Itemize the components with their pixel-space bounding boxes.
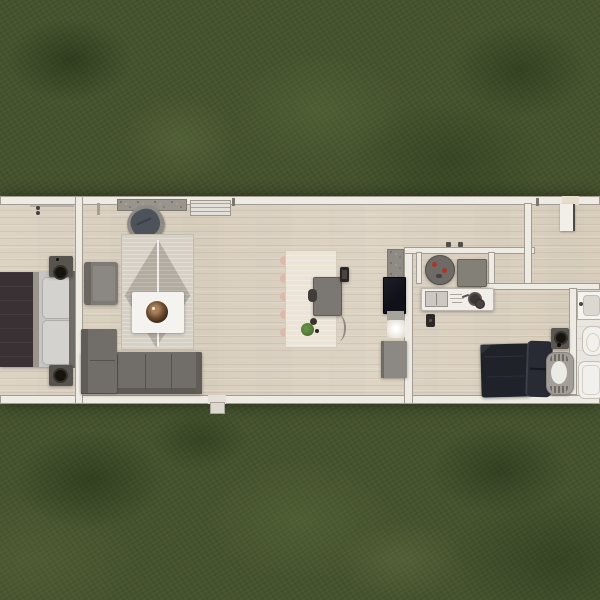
slatted-console[interactable]: [190, 200, 231, 216]
wood-tray: [146, 301, 168, 323]
wall-entry-left: [524, 203, 532, 290]
table-item: [436, 274, 442, 278]
granite-counter[interactable]: [387, 249, 404, 278]
wall-bedroom2-top: [480, 283, 600, 290]
nightstand[interactable]: [551, 328, 569, 349]
table-lamp: [554, 331, 568, 345]
building: [0, 196, 600, 404]
wall-nook-right-stub: [488, 252, 495, 284]
wall-mark-2: [232, 198, 235, 206]
coffee-table[interactable]: [132, 292, 184, 333]
frame-inner: [342, 270, 347, 279]
wall-greatroom-kitchenwing: [404, 248, 413, 404]
side-table[interactable]: [457, 259, 487, 287]
wall-mark-1: [97, 203, 100, 215]
sofa-seam: [117, 354, 118, 390]
tub-inner-line: [582, 365, 600, 395]
sofa-chaise[interactable]: [81, 329, 117, 393]
sink-divider: [436, 293, 437, 305]
toilet[interactable]: [582, 326, 600, 356]
duvet-fold: [487, 375, 525, 377]
bassinet-ribs-top: [550, 354, 568, 361]
toilet-seat-line: [586, 333, 600, 352]
gray-cabinet[interactable]: [381, 341, 407, 378]
wall-nook-left-stub: [416, 252, 422, 284]
plant-pot: [310, 318, 317, 325]
wall-nook-top: [404, 247, 535, 254]
bed-1-duvet: [0, 272, 33, 367]
bin-dot: [429, 319, 432, 322]
bassinet-ribs-bottom: [550, 386, 568, 393]
utensil-mark: [450, 294, 462, 295]
nightstand[interactable]: [49, 365, 73, 386]
bed-1-pillow: [42, 277, 72, 319]
lamp-dot: [56, 258, 59, 261]
desk-chair[interactable]: [308, 289, 317, 302]
front-door-leaf[interactable]: [560, 204, 575, 231]
gray-table[interactable]: [313, 277, 342, 316]
bed-2-duvet[interactable]: [480, 343, 530, 397]
dark-frame[interactable]: [340, 267, 349, 282]
sink-basin: [583, 295, 600, 316]
kitchen-sink-glow[interactable]: [387, 320, 405, 338]
waste-bin[interactable]: [426, 314, 435, 327]
bed-1-blanket-fold: [33, 272, 39, 367]
bed-1-headboard: [69, 271, 75, 368]
sofa-seam: [145, 354, 146, 390]
bed-1-pillow: [42, 320, 72, 365]
pendant-dot: [446, 242, 451, 247]
door-step: [210, 402, 225, 414]
pendant-dot: [458, 242, 463, 247]
duvet-fold: [485, 355, 525, 357]
sofa-seam: [171, 354, 172, 390]
square-armchair-back: [84, 262, 91, 305]
chaise-seam: [90, 360, 115, 361]
floor-plan-canvas: [0, 0, 600, 600]
bassinet[interactable]: [546, 352, 574, 395]
small-item-dot: [315, 329, 319, 333]
duvet-corner: [480, 344, 492, 354]
nightstand[interactable]: [49, 256, 73, 277]
faucet-dot: [579, 302, 583, 306]
chaise-arm-left: [81, 329, 88, 393]
tray-glint: [152, 307, 155, 310]
bassinet-mattress: [551, 361, 567, 384]
vanity[interactable]: [577, 291, 600, 320]
exterior-wall-top: [0, 196, 600, 205]
island-sink: [425, 291, 448, 307]
lamp-dot: [557, 343, 561, 347]
red-plate: [432, 262, 437, 267]
sofa-arm-right: [196, 352, 202, 394]
wall-mark-3: [536, 198, 539, 206]
pot: [475, 299, 485, 309]
window-dot: [36, 206, 40, 210]
utensil-mark: [452, 302, 462, 303]
bed-1[interactable]: [0, 272, 73, 367]
window-dot: [36, 211, 40, 215]
bathtub[interactable]: [578, 361, 600, 399]
square-armchair-cushion: [93, 266, 115, 301]
table-lamp: [53, 368, 68, 383]
red-plate: [442, 268, 447, 273]
bistro-table[interactable]: [425, 255, 455, 285]
square-armchair[interactable]: [84, 262, 118, 305]
cooktop[interactable]: [383, 277, 406, 314]
island-counter[interactable]: [421, 288, 494, 311]
table-lamp: [53, 265, 68, 280]
